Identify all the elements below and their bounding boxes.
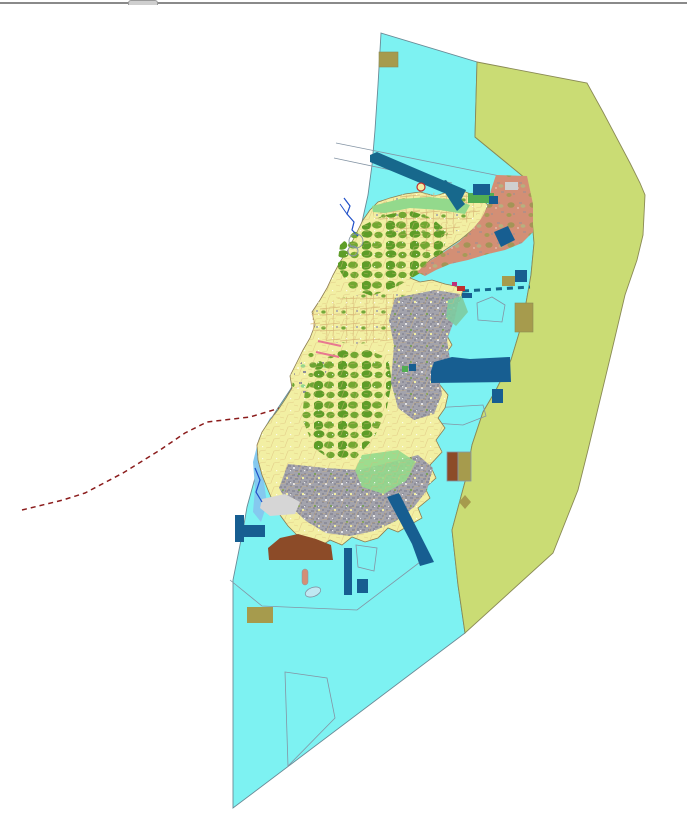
harbor-magenta-mark (452, 282, 457, 286)
khaki-block-southwest (247, 607, 273, 623)
navy-square-ne (489, 196, 498, 204)
green-dot-center (402, 366, 408, 372)
salmon-figure-south (302, 569, 308, 585)
khaki-block-top (379, 52, 398, 67)
marker-circle-red (417, 183, 425, 191)
khaki-block-east (502, 276, 515, 286)
facility-khaki-half (458, 452, 471, 481)
port-basin-east (431, 357, 511, 383)
navy-square-east (515, 270, 527, 282)
navy-rect-ne (473, 184, 490, 195)
navy-dot-center (409, 364, 416, 371)
lightgray-block-ne (505, 182, 518, 190)
navy-square-east-2 (492, 389, 503, 403)
navy-square-south (357, 579, 368, 593)
navy-strip-south (344, 548, 352, 595)
map-canvas[interactable] (0, 0, 687, 821)
map-viewport[interactable] (0, 0, 687, 821)
khaki-block-east-2 (515, 303, 533, 332)
facility-brown-half (447, 452, 458, 481)
harbor-red-mark (457, 286, 465, 291)
harbor-navy-mark (462, 293, 472, 298)
river-north-branch (340, 204, 347, 214)
